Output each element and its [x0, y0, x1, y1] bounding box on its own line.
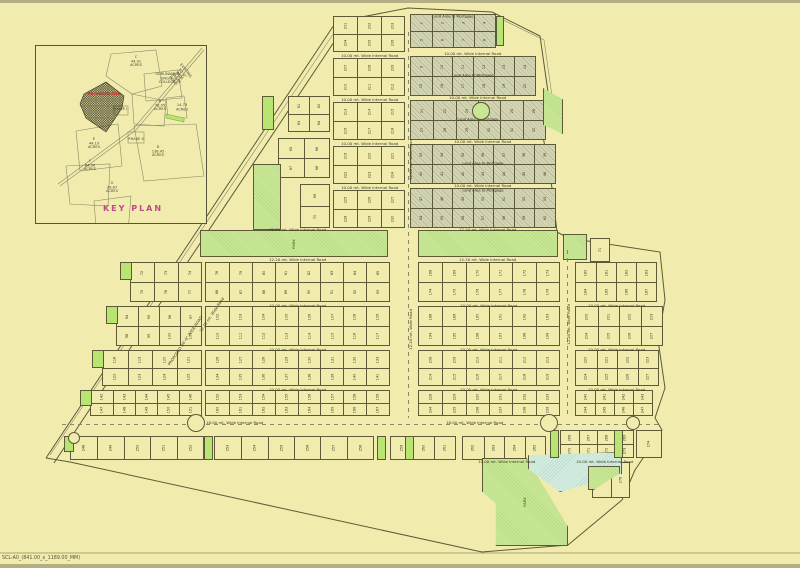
plot: 216 — [466, 368, 489, 385]
plot-number: 32 — [532, 128, 536, 132]
plot: 69 — [301, 185, 329, 206]
road-label-vertical: 12.20 mt. Wide Road — [409, 139, 414, 180]
plot: 106 — [298, 307, 321, 326]
plot-number: 140 — [353, 374, 357, 380]
plot-number: 34 — [440, 152, 444, 156]
plot-number: 93 — [376, 290, 380, 294]
plot-number: 232 — [522, 394, 526, 400]
plot: 258 — [347, 437, 373, 459]
plot: 94 — [117, 307, 138, 326]
plot-number: 145 — [166, 394, 170, 400]
plot: 57 — [473, 208, 494, 227]
plot: 188 — [419, 307, 442, 326]
plot-number: 18 — [482, 84, 486, 88]
plot: 268 — [597, 431, 615, 444]
plot-number: 206 — [628, 333, 632, 339]
plot-number: 180 — [584, 269, 588, 275]
plot: 171 — [489, 263, 512, 282]
road-label: 10.00 mt. Wide Internal Road — [205, 303, 390, 309]
plot: 173 — [536, 263, 559, 282]
plot: 214 — [419, 368, 442, 385]
plot-block: 253254255256257258 — [214, 436, 374, 460]
plot: 144 — [135, 391, 157, 403]
plot: 109 — [366, 307, 389, 326]
plot: 209 — [442, 351, 465, 368]
plot: 53 — [534, 189, 555, 208]
plot: 264 — [504, 437, 525, 459]
plot-number: 109 — [376, 313, 380, 319]
plot-number: 119 — [138, 356, 142, 362]
plot-number: 238 — [522, 406, 526, 412]
plot-number: 40 — [419, 172, 423, 176]
plot-number: 188 — [429, 313, 433, 319]
plot: 172 — [512, 263, 535, 282]
plot-number: 35 — [461, 152, 465, 156]
green-area — [614, 430, 623, 458]
plot: 115 — [320, 326, 343, 345]
plot: 108 — [343, 307, 366, 326]
plot-number: 200 — [585, 313, 589, 319]
plot-number: 228 — [344, 215, 348, 221]
plot: 98 — [117, 326, 138, 345]
road-center-dash — [408, 32, 409, 418]
plot-number: 198 — [522, 333, 526, 339]
plot-number: 196 — [476, 333, 480, 339]
plot: 180 — [576, 263, 596, 282]
plot-number: 239 — [546, 406, 550, 412]
plot-number: 60 — [543, 216, 547, 220]
plot-number: 130 — [307, 356, 311, 362]
plot-number: 143 — [122, 394, 126, 400]
plot-block: 12345678Land Area to Mortgage — [410, 14, 496, 48]
plot-number: 94 — [125, 314, 129, 318]
plot-number: 90 — [307, 290, 311, 294]
plot: 228 — [334, 209, 357, 227]
road-label: 10.00 mt. Wide Internal Road — [575, 347, 659, 353]
key-plan-area-label: E 44.19 ACRES — [88, 138, 100, 150]
plot: 121 — [177, 351, 202, 368]
plot-number: 41 — [440, 172, 444, 176]
plot: 89 — [275, 282, 298, 301]
plot-number: 253 — [226, 445, 230, 451]
plot: 5 — [411, 31, 432, 47]
plot-number: 162 — [262, 406, 266, 412]
plot: 220 — [357, 147, 380, 165]
plot: 222 — [334, 165, 357, 183]
plot: 169 — [442, 263, 465, 282]
plot: 100 — [159, 326, 180, 345]
plot: 215 — [381, 103, 404, 121]
plot-block: 201202203204205206 — [333, 16, 405, 52]
plot-number: 213 — [546, 356, 550, 362]
plot: 143 — [113, 391, 135, 403]
plot: 142 — [91, 391, 113, 403]
plot-number: 31 — [510, 128, 514, 132]
plot: 42 — [452, 164, 473, 183]
plot-number: 257 — [332, 445, 336, 451]
plot: 70 — [301, 206, 329, 227]
plot: 17 — [452, 76, 473, 95]
plot: 194 — [419, 326, 442, 345]
plot-number: 116 — [353, 333, 357, 339]
plot: 252 — [177, 437, 203, 459]
plot: 163 — [275, 403, 298, 415]
plot-number: 98 — [125, 334, 129, 338]
plot-number: 27 — [420, 128, 424, 132]
plot-number: 178 — [522, 289, 526, 295]
plot: 201 — [598, 307, 620, 326]
plot: 202 — [619, 307, 641, 326]
plot-block: 213214215216217218 — [333, 102, 405, 140]
plot-number: 263 — [492, 445, 496, 451]
plot-number: 44 — [502, 172, 506, 176]
plot: 168 — [419, 263, 442, 282]
plot: 91 — [320, 282, 343, 301]
plot-number: 212 — [391, 83, 395, 89]
plot-number: 75 — [141, 290, 145, 294]
plot: 234 — [419, 403, 442, 415]
plot-number: 230 — [391, 215, 395, 221]
key-plan-area-label: PHASE I — [113, 108, 127, 112]
plot: 184 — [576, 282, 596, 301]
plot: 212 — [381, 77, 404, 95]
plot-number: 172 — [522, 269, 526, 275]
mortgage-label: Land Area to Mortgage — [431, 189, 535, 193]
plot-number: 206 — [391, 40, 395, 46]
plot-number: 133 — [376, 356, 380, 362]
plot-number: 241 — [603, 394, 607, 400]
plot-number: 186 — [624, 289, 628, 295]
plot: 223 — [638, 351, 659, 368]
plot-number: 205 — [607, 333, 611, 339]
plot-number: 49 — [461, 196, 465, 200]
green-area — [550, 430, 559, 458]
plot: 83 — [320, 263, 343, 282]
plot: 257 — [320, 437, 346, 459]
plot: 204 — [576, 326, 598, 345]
plot-block: 65666768 — [278, 138, 330, 178]
plot-number: 234 — [429, 406, 433, 412]
plot-number: 165 — [330, 406, 334, 412]
plot: 135 — [229, 368, 252, 385]
road-label: 10.00 mt. Wide Internal Road — [575, 303, 659, 309]
plot-number: 10 — [440, 64, 444, 68]
key-plan-area-label: PHASE II — [128, 138, 143, 142]
plot-number: 256 — [306, 445, 310, 451]
plot-number: 150 — [166, 406, 170, 412]
plot-number: 6 — [441, 38, 445, 40]
plot: 210 — [466, 351, 489, 368]
plot-number: 191 — [499, 313, 503, 319]
plot-number: 193 — [546, 313, 550, 319]
plot-block: 727374757677 — [130, 262, 202, 302]
key-plan-area-label: 14.73 ACRES — [176, 104, 188, 112]
plot: 211 — [489, 351, 512, 368]
plot-number: 237 — [499, 406, 503, 412]
plot: 214 — [357, 103, 380, 121]
plot: 224 — [381, 165, 404, 183]
plot-number: 152 — [215, 394, 219, 400]
plot: 44 — [493, 164, 514, 183]
plot-number: 211 — [367, 83, 371, 89]
plot: 202 — [357, 17, 380, 34]
sheet-size-label: SCL-A0_(841.00_x_1189.00_MM) — [2, 555, 80, 561]
plot: 225 — [597, 368, 618, 385]
plot-number: 65 — [289, 146, 293, 150]
plot-number: 245 — [603, 406, 607, 412]
plot-number: 21 — [420, 108, 424, 112]
plot: 177 — [489, 282, 512, 301]
plot-number: 96 — [168, 314, 172, 318]
plot-number: 216 — [344, 127, 348, 133]
plot-number: 199 — [546, 333, 550, 339]
green-area — [405, 436, 414, 460]
plot: 33 — [411, 145, 432, 164]
plot: 218 — [381, 121, 404, 139]
plot: 116 — [343, 326, 366, 345]
plot: 126 — [206, 351, 229, 368]
green-area: PARK — [200, 230, 388, 257]
plot-number: 100 — [168, 333, 172, 339]
plot-number: 9 — [419, 65, 423, 67]
plot: 213 — [334, 103, 357, 121]
plot-number: 61 — [297, 103, 301, 107]
green-area — [253, 164, 281, 230]
plot-block: 259260261 — [390, 436, 456, 460]
plot: 251 — [150, 437, 176, 459]
plot-number: 147 — [100, 406, 104, 412]
plot: 266 — [561, 431, 579, 444]
plot-number: 250 — [135, 445, 139, 451]
plot-block: 168169170171172173174175176177178179 — [418, 262, 560, 302]
plot: 204 — [334, 34, 357, 51]
plot-number: 216 — [476, 374, 480, 380]
plot-number: 221 — [605, 356, 609, 362]
plot-number: 171 — [499, 269, 503, 275]
plot: 262 — [463, 437, 484, 459]
plot-block: 240241242243244245246247 — [575, 390, 653, 416]
plot: 174 — [419, 282, 442, 301]
plot-number: 249 — [109, 445, 113, 451]
plot: 205 — [598, 326, 620, 345]
plot-block: 61626364 — [288, 96, 330, 132]
plot-number: 106 — [307, 313, 311, 319]
plot: 39 — [534, 145, 555, 164]
plot-number: 23 — [465, 108, 469, 112]
plot-number: 124 — [163, 374, 167, 380]
plot-number: 223 — [367, 171, 371, 177]
plot-number: 183 — [644, 269, 648, 275]
plot: 127 — [229, 351, 252, 368]
plot-number: 184 — [584, 289, 588, 295]
plot-number: 7 — [462, 38, 466, 40]
plot: 210 — [334, 77, 357, 95]
plot-number: 66 — [315, 146, 319, 150]
plot-number: 91 — [330, 290, 334, 294]
plot-number: 224 — [391, 171, 395, 177]
plot: 28 — [433, 120, 455, 139]
plot: 60 — [534, 208, 555, 227]
plot-number: 29 — [465, 128, 469, 132]
plot-number: 15 — [419, 84, 423, 88]
plot-number: 11 — [461, 64, 465, 68]
plot: 247 — [633, 403, 652, 415]
plot-number: 47 — [419, 196, 423, 200]
road-label: 10.00 mt. Wide Internal Road — [410, 51, 536, 57]
plot-number: 19 — [502, 84, 506, 88]
plot: 81 — [275, 263, 298, 282]
plot: 238 — [512, 403, 535, 415]
plot: 206 — [619, 326, 641, 345]
plot: 65 — [279, 139, 304, 158]
plot-number: 254 — [253, 445, 257, 451]
road-label: 10.00 mt. Wide Internal Road — [418, 347, 560, 353]
road-label: 10.00 mt. Wide Internal Road — [560, 459, 650, 465]
plot-block: 142143144145146147148149150151 — [90, 390, 202, 416]
plot: 132 — [343, 351, 366, 368]
plot: 255 — [268, 437, 294, 459]
plot: 75 — [131, 282, 154, 301]
plot-number: 166 — [353, 406, 357, 412]
plot: 19 — [494, 76, 515, 95]
plot: 40 — [411, 164, 432, 183]
plot-number: 142 — [100, 394, 104, 400]
plot: 219 — [536, 368, 559, 385]
plot-number: 181 — [604, 269, 608, 275]
roundabout — [187, 414, 205, 432]
plot-number: 267 — [586, 434, 590, 440]
green-area — [496, 16, 504, 46]
plot: 119 — [128, 351, 153, 368]
plot: 54 — [411, 208, 432, 227]
plot: 125 — [177, 368, 202, 385]
plot-number: 42 — [461, 172, 465, 176]
plot: 193 — [536, 307, 559, 326]
plot-number: 194 — [429, 333, 433, 339]
plot-number: 33 — [419, 152, 423, 156]
plot: 170 — [466, 263, 489, 282]
plot: 181 — [596, 263, 616, 282]
plot-number: 229 — [452, 394, 456, 400]
plot: 253 — [215, 437, 241, 459]
plot-number: 266 — [568, 434, 572, 440]
plot: 236 — [466, 403, 489, 415]
plot: 16 — [432, 76, 453, 95]
plot: 31 — [500, 120, 522, 139]
road-label: 10.00 mt. Wide Internal Road — [205, 347, 390, 353]
plot: 207 — [641, 326, 663, 345]
plot: 230 — [381, 209, 404, 227]
plot-number: 83 — [330, 270, 334, 274]
plot-number: 104 — [262, 313, 266, 319]
plot-number: 118 — [113, 356, 117, 362]
plot: 197 — [489, 326, 512, 345]
plot-number: 77 — [188, 290, 192, 294]
plot-block: 219220221222223224 — [333, 146, 405, 184]
plot: 191 — [489, 307, 512, 326]
plot-number: 169 — [452, 269, 456, 275]
plot-number: 17 — [461, 84, 465, 88]
plot-number: 97 — [189, 314, 193, 318]
plot: 131 — [320, 351, 343, 368]
road-label: 10.00 mt. Wide Internal Road — [410, 139, 556, 145]
plot: 15 — [411, 76, 432, 95]
plot: 118 — [103, 351, 128, 368]
plot: 71 — [591, 239, 609, 261]
plot: 59 — [514, 208, 535, 227]
plot-number: 208 — [429, 356, 433, 362]
plot-number: 71 — [598, 248, 602, 252]
plot-number: 57 — [481, 216, 485, 220]
plot: 225 — [334, 191, 357, 209]
plot-number: 38 — [523, 152, 527, 156]
plot-number: 78 — [215, 270, 219, 274]
plot: 61 — [289, 97, 309, 114]
plot: 222 — [617, 351, 638, 368]
plot: 195 — [442, 326, 465, 345]
plot: 43 — [473, 164, 494, 183]
plot-number: 209 — [391, 65, 395, 71]
plot-number: 131 — [330, 356, 334, 362]
plot: 256 — [294, 437, 320, 459]
plot-number: 132 — [353, 356, 357, 362]
plot: 136 — [252, 368, 275, 385]
plot: 138 — [298, 368, 321, 385]
plot-number: 157 — [330, 394, 334, 400]
plot-number: 102 — [215, 313, 219, 319]
mortgage-label: Land Area to Mortgage — [428, 74, 517, 78]
plot-number: 53 — [543, 196, 547, 200]
plot: 221 — [381, 147, 404, 165]
plot-number: 201 — [607, 313, 611, 319]
plot-block: 3334353637383940414243444546Land Area to… — [410, 144, 556, 184]
plot-number: 30 — [488, 128, 492, 132]
plot: 187 — [636, 282, 656, 301]
plot-number: 146 — [188, 394, 192, 400]
plot-number: 218 — [391, 127, 395, 133]
plot: 90 — [298, 282, 321, 301]
plot-number: 92 — [353, 290, 357, 294]
plot-number: 135 — [239, 374, 243, 380]
plot-number: 175 — [452, 289, 456, 295]
road-label: 12.20 mt. Wide Internal Road — [418, 257, 558, 263]
road-label: 18.00 mt. Wide Internal Road — [120, 420, 350, 426]
plot: 104 — [252, 307, 275, 326]
plot-number: 128 — [262, 356, 266, 362]
plot-block: 1021031041051061071081091101111121131141… — [205, 306, 390, 346]
plot: 226 — [617, 368, 638, 385]
plot-number: 46 — [543, 172, 547, 176]
plot-number: 265 — [533, 445, 537, 451]
plot-number: 12 — [482, 64, 486, 68]
plot: 249 — [97, 437, 123, 459]
plot-number: 233 — [546, 394, 550, 400]
plot-number: 20 — [523, 84, 527, 88]
plot-number: 76 — [164, 290, 168, 294]
key-plan-area-label: D 136.45 ACRES — [152, 146, 165, 158]
plot-number: 182 — [624, 269, 628, 275]
plot-number: 149 — [144, 406, 148, 412]
plot: 213 — [536, 351, 559, 368]
plot-number: 105 — [285, 313, 289, 319]
roundabout — [540, 414, 558, 432]
plot-number: 270 — [568, 448, 572, 454]
plot: 82 — [298, 263, 321, 282]
plot-number: 144 — [144, 394, 148, 400]
plot: 244 — [576, 403, 595, 415]
plot-number: 211 — [499, 356, 503, 362]
plot-number: 217 — [367, 127, 371, 133]
